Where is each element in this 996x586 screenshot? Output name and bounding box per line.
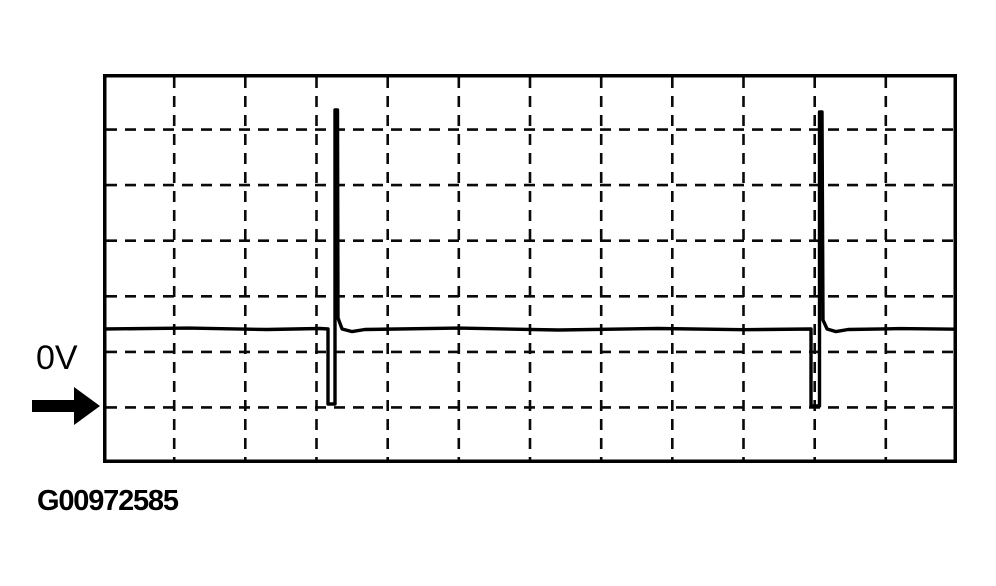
oscilloscope-screen: [103, 74, 957, 463]
arrow-right-shape: [32, 387, 100, 425]
arrow-right-icon: [30, 384, 102, 428]
zero-volt-label: 0V: [36, 341, 78, 375]
figure-id-caption: G00972585: [37, 487, 178, 516]
figure-canvas: 0V G00972585: [0, 0, 996, 586]
